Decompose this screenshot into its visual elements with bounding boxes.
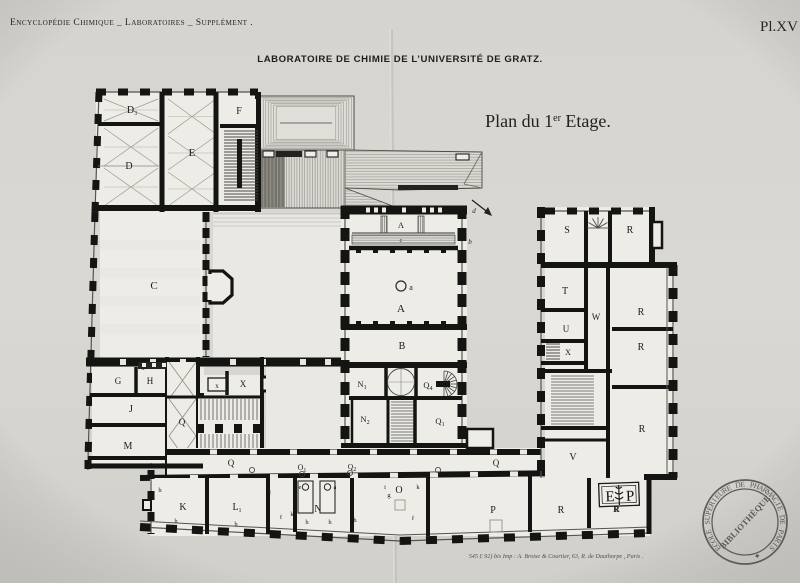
svg-text:X: X — [565, 348, 571, 357]
svg-text:R: R — [638, 342, 645, 353]
svg-text:x: x — [215, 382, 219, 390]
svg-text:Pl.XV: Pl.XV — [760, 19, 798, 35]
svg-text:U: U — [563, 324, 570, 334]
svg-text:C: C — [150, 280, 157, 292]
svg-text:F: F — [236, 106, 242, 117]
svg-text:R: R — [558, 505, 565, 516]
svg-text:O: O — [395, 485, 402, 496]
svg-text:R: R — [639, 424, 646, 435]
svg-text:c: c — [400, 237, 403, 244]
svg-text:E: E — [778, 520, 787, 525]
svg-text:H: H — [147, 376, 154, 386]
svg-text:W: W — [592, 312, 601, 322]
svg-text:e: e — [299, 484, 302, 491]
svg-text:LABORATOIRE DE CHIMIE DE L’UNI: LABORATOIRE DE CHIMIE DE L’UNIVERSITÉ DE… — [257, 53, 542, 65]
svg-text:R: R — [614, 505, 620, 514]
svg-text:P: P — [626, 488, 635, 504]
svg-text:B: B — [399, 341, 406, 352]
svg-text:M: M — [124, 441, 133, 452]
svg-text:S: S — [564, 225, 570, 236]
svg-text:ENCYCLOPÉDIE CHIMIQUE _ LABORA: ENCYCLOPÉDIE CHIMIQUE _ LABORATOIRES _ S… — [10, 17, 253, 28]
svg-text:E: E — [189, 147, 196, 159]
svg-text:K: K — [179, 502, 187, 513]
svg-text:Q: Q — [228, 458, 235, 468]
svg-text:E: E — [740, 480, 746, 489]
svg-text:E: E — [605, 489, 615, 505]
svg-text:Q: Q — [493, 458, 500, 468]
svg-text:J: J — [129, 404, 133, 415]
svg-text:G: G — [115, 376, 122, 386]
svg-text:A: A — [397, 303, 405, 315]
svg-text:a: a — [334, 484, 337, 491]
svg-text:A: A — [398, 220, 405, 230]
svg-text:Plan du 1er Etage.: Plan du 1er Etage. — [485, 111, 611, 131]
svg-text:D: D — [125, 161, 132, 172]
svg-text:P: P — [490, 505, 496, 516]
svg-text:R: R — [638, 307, 645, 318]
svg-text:Q: Q — [179, 417, 186, 427]
svg-text:V: V — [569, 452, 577, 463]
svg-text:a: a — [409, 283, 413, 292]
svg-text:b: b — [468, 238, 472, 246]
svg-text:d: d — [472, 207, 476, 215]
svg-text:545 £ 92) bis Imp : A. Broise: 545 £ 92) bis Imp : A. Broise & Courtier… — [469, 553, 644, 560]
svg-text:R: R — [627, 225, 634, 236]
svg-text:i: i — [384, 484, 386, 491]
svg-text:T: T — [562, 286, 568, 297]
svg-text:X: X — [240, 379, 247, 389]
